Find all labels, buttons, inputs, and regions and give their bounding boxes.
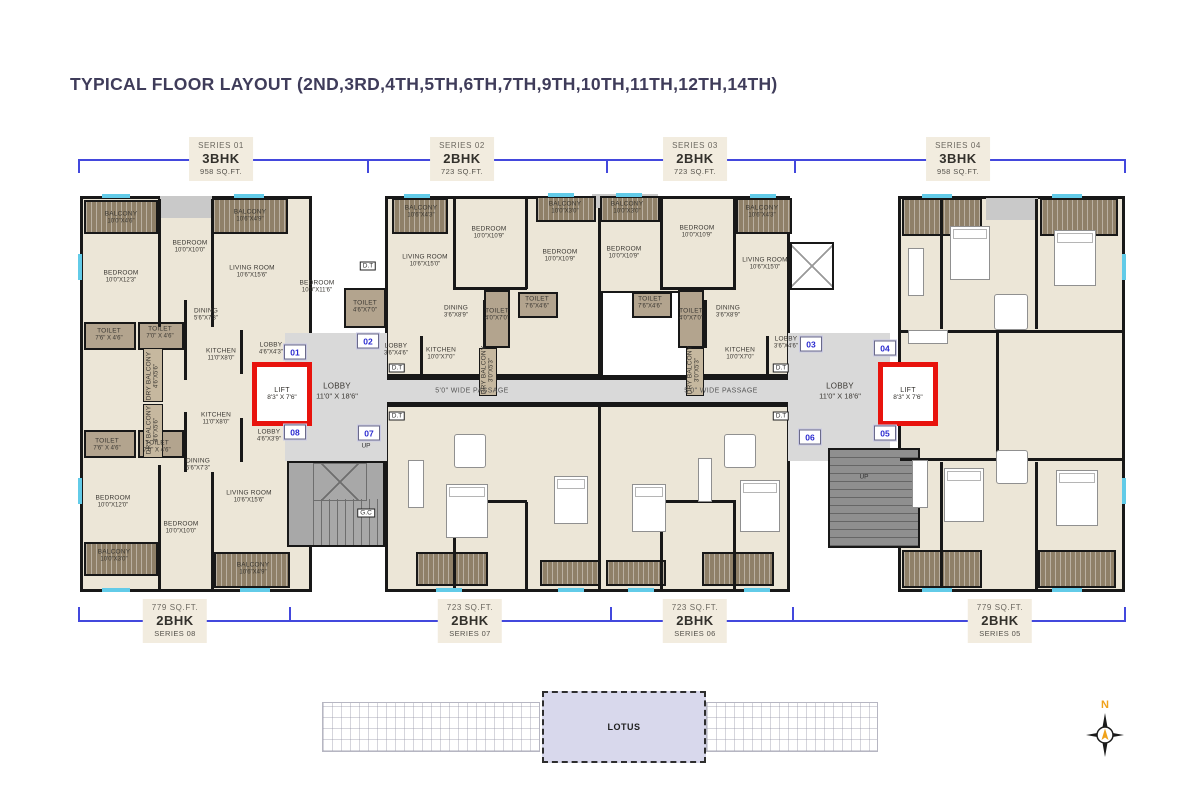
wall <box>1035 462 1038 590</box>
wall <box>704 300 707 348</box>
room-label: TOILET7'6"X4'6" <box>525 296 549 311</box>
stairs-up-label: UP <box>859 474 868 481</box>
room-label: DINING5'6"X7'3" <box>194 308 218 323</box>
window <box>616 193 642 197</box>
window <box>922 588 952 592</box>
series-card-bottom: 779 SQ.FT.2BHKSERIES 08 <box>143 599 207 643</box>
room-label: LOBBY4'6"X3'9" <box>257 429 281 444</box>
wall <box>996 330 999 460</box>
bed <box>1056 470 1098 526</box>
unit-number-badge: 08 <box>284 425 306 440</box>
service-label: D.T <box>773 412 789 421</box>
room-label: DRY BALCONY4'6"X5'6" <box>146 352 161 401</box>
series-card-top: SERIES 022BHK723 SQ.FT. <box>430 137 494 181</box>
wall <box>766 336 769 380</box>
balcony <box>606 560 666 586</box>
wall <box>1035 199 1038 329</box>
shaft <box>790 242 834 290</box>
bracket-tick <box>610 607 612 622</box>
unit-number-badge: 03 <box>800 337 822 352</box>
bed <box>554 476 588 524</box>
room-label: TOILET4'0"X7'0" <box>679 308 703 323</box>
wall <box>940 462 943 590</box>
lobby-label: LOBBY11'0" X 18'6" <box>819 382 861 401</box>
staircase <box>287 461 385 547</box>
lift: LIFT8'3" X 7'6" <box>252 362 312 426</box>
unit-number-badge: 07 <box>358 426 380 441</box>
wall <box>660 287 736 290</box>
stair-landing <box>313 463 367 501</box>
sofa <box>408 460 424 508</box>
unit-number-badge: 04 <box>874 341 896 356</box>
room-label: TOILET7'6" X 4'6" <box>95 328 122 343</box>
bracket-tick <box>1124 607 1126 622</box>
service-label: D.T <box>389 412 405 421</box>
room-label: LOBBY4'6"X4'3" <box>259 342 283 357</box>
room-label: BALCONY10'6"X4'9" <box>237 562 269 577</box>
key-plan-building-label: LOTUS <box>608 722 641 732</box>
bracket-tick <box>794 159 796 173</box>
lift-label: LIFT <box>900 387 916 394</box>
window <box>240 588 270 592</box>
wall <box>184 300 187 380</box>
unit-number-badge: 01 <box>284 345 306 360</box>
room-label: BALCONY10'0"X4'6" <box>105 211 137 226</box>
balcony <box>1038 550 1116 588</box>
bracket-tick <box>792 607 794 622</box>
room-label: TOILET7'6" X 4'6" <box>93 438 120 453</box>
room-label: LOBBY3'6"X4'6" <box>774 336 798 351</box>
room-label: DINING3'6"X8'9" <box>444 305 468 320</box>
unit-number-badge: 06 <box>799 430 821 445</box>
room-label: DINING3'6"X8'9" <box>716 305 740 320</box>
room-label: TOILET7'6"X4'6" <box>638 296 662 311</box>
compass-star-icon <box>1085 712 1125 758</box>
compass-rose: N <box>1083 700 1127 764</box>
room-label: BEDROOM10'0"X10'9" <box>472 226 507 241</box>
room-label: KITCHEN11'0"X8'0" <box>206 348 236 363</box>
bracket-tick <box>606 159 608 173</box>
service-label: D.T <box>360 262 376 271</box>
key-plan-right-wing <box>706 702 878 752</box>
room-label: BALCONY10'6"X4'9" <box>234 209 266 224</box>
window <box>102 194 130 198</box>
balcony <box>540 560 600 586</box>
room-label: BEDROOM10'0"X10'9" <box>607 246 642 261</box>
bed <box>950 226 990 280</box>
window <box>1052 588 1082 592</box>
window <box>234 194 264 198</box>
room-label: DRY BALCONY4'6"X5'6" <box>146 406 161 455</box>
window <box>1122 478 1126 504</box>
bracket-tick <box>289 607 291 622</box>
room-label: BEDROOM10'0"X10'9" <box>543 249 578 264</box>
lift: LIFT8'3" X 7'6" <box>878 362 938 426</box>
dining-table <box>994 294 1028 330</box>
room-label: TOILET7'0" X 4'6" <box>146 326 173 341</box>
room-label: BEDROOM10'0"X11'6" <box>300 280 335 295</box>
wall <box>525 199 528 289</box>
wall <box>660 199 663 289</box>
bed <box>632 484 666 532</box>
bed <box>446 484 488 538</box>
sofa <box>912 460 928 508</box>
sofa <box>908 248 924 296</box>
balcony <box>416 552 488 586</box>
room-label: KITCHEN10'0"X7'0" <box>426 347 456 362</box>
series-card-bottom: 723 SQ.FT.2BHKSERIES 06 <box>663 599 727 643</box>
wall <box>453 287 527 290</box>
stairs-up-label: UP <box>361 443 370 450</box>
window <box>102 588 130 592</box>
lift-dims: 8'3" X 7'6" <box>893 394 923 401</box>
wall <box>733 199 736 289</box>
passage-label: 5'0" WIDE PASSAGE <box>435 388 509 395</box>
wall <box>525 502 528 590</box>
dining-table <box>724 434 756 468</box>
balcony <box>702 552 774 586</box>
lift-dims: 8'3" X 7'6" <box>267 394 297 401</box>
dining-table <box>454 434 486 468</box>
wall <box>940 199 943 329</box>
room-label: BEDROOM10'0"X12'3" <box>104 270 139 285</box>
room-label: TOILET4'0"X7'0" <box>485 308 509 323</box>
service-label: G.C <box>357 509 375 518</box>
bed <box>944 468 984 522</box>
room-label: DRY BALCONY3'0"X5'3" <box>687 346 702 395</box>
dining-table <box>996 450 1028 484</box>
window <box>744 588 770 592</box>
window <box>78 254 82 280</box>
bed <box>1054 230 1096 286</box>
room-label: BEDROOM10'0"X10'0" <box>173 240 208 255</box>
room-label: KITCHEN11'0"X8'0" <box>201 412 231 427</box>
staircase <box>828 448 920 548</box>
service-strip <box>986 198 1038 220</box>
wall <box>240 330 243 374</box>
room-label: TOILET4'6"X7'0" <box>353 300 377 315</box>
room-label: BEDROOM10'0"X10'9" <box>680 225 715 240</box>
sofa <box>908 330 948 344</box>
series-card-top: SERIES 043BHK958 SQ.FT. <box>926 137 990 181</box>
room-label: BALCONY10'6"X4'3" <box>405 205 437 220</box>
unit-number-badge: 05 <box>874 426 896 441</box>
lift-label: LIFT <box>274 387 290 394</box>
lobby-label: LOBBY11'0" X 18'6" <box>316 382 358 401</box>
floor-plan-page: TYPICAL FLOOR LAYOUT (2ND,3RD,4TH,5TH,6T… <box>0 0 1200 800</box>
room-label: LIVING ROOM10'6"X15'6" <box>226 490 272 505</box>
window <box>548 193 574 197</box>
room-label: BALCONY10'0"X3'0" <box>549 201 581 216</box>
stair-flight <box>313 499 383 545</box>
room-label: LOBBY3'6"X4'6" <box>384 343 408 358</box>
window <box>436 588 462 592</box>
room-label: LIVING ROOM10'6"X15'0" <box>402 254 448 269</box>
key-plan: LOTUS <box>322 688 878 766</box>
room-label: BEDROOM10'0"X10'0" <box>164 521 199 536</box>
room-label: KITCHEN10'0"X7'0" <box>725 347 755 362</box>
window <box>78 478 82 504</box>
window <box>558 588 584 592</box>
sofa <box>698 458 712 502</box>
window <box>1122 254 1126 280</box>
wall <box>211 472 214 590</box>
window <box>750 194 776 198</box>
window <box>628 588 654 592</box>
series-card-top: SERIES 013BHK958 SQ.FT. <box>189 137 253 181</box>
bracket-tick <box>367 159 369 173</box>
room-label: BEDROOM10'0"X12'0" <box>96 495 131 510</box>
service-label: D.T <box>773 364 789 373</box>
window <box>1052 194 1082 198</box>
wall <box>158 199 161 327</box>
room-label: LIVING ROOM10'6"X15'6" <box>229 265 275 280</box>
floor-plan-drawing: LIFT8'3" X 7'6"LIFT8'3" X 7'6"LOBBY11'0"… <box>0 0 1200 800</box>
series-card-bottom: 779 SQ.FT.2BHKSERIES 05 <box>968 599 1032 643</box>
service-strip <box>160 196 212 218</box>
key-plan-left-wing <box>322 702 540 752</box>
key-plan-highlighted-building: LOTUS <box>542 691 706 763</box>
room-label: BALCONY10'0"X3'0" <box>611 201 643 216</box>
wall <box>420 336 423 380</box>
bracket-tick <box>78 159 80 173</box>
room-label: LIVING ROOM10'6"X15'0" <box>742 257 788 272</box>
unit-number-badge: 02 <box>357 334 379 349</box>
room-label: BALCONY10'6"X4'3" <box>746 205 778 220</box>
series-card-top: SERIES 032BHK723 SQ.FT. <box>663 137 727 181</box>
compass-north-label: N <box>1083 700 1127 711</box>
wall <box>453 199 456 289</box>
service-label: D.T <box>389 364 405 373</box>
room-label: BALCONY10'0"X3'0" <box>98 549 130 564</box>
bracket-tick <box>78 607 80 622</box>
room-label: DRY BALCONY3'0"X5'3" <box>481 346 496 395</box>
wall <box>240 418 243 462</box>
wall <box>733 502 736 590</box>
bracket-tick <box>1124 159 1126 173</box>
room-label: DINING5'6"X7'3" <box>186 458 210 473</box>
series-card-bottom: 723 SQ.FT.2BHKSERIES 07 <box>438 599 502 643</box>
wall <box>158 465 161 590</box>
bed <box>740 480 780 532</box>
window <box>404 194 430 198</box>
window <box>922 194 952 198</box>
